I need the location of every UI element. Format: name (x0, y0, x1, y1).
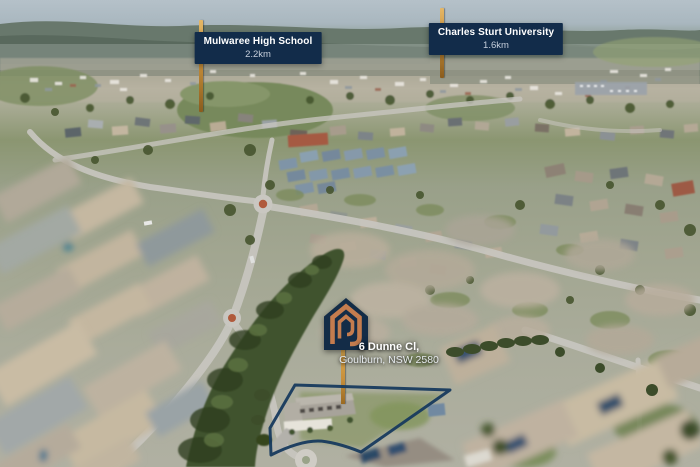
aerial-property-photo: Mulwaree High School 2.2km Charles Sturt… (0, 0, 700, 467)
property-address-line2: Goulburn, NSW 2580 (339, 354, 439, 366)
poi-label-school: Mulwaree High School 2.2km (195, 32, 322, 64)
property-address: 6 Dunne Cl, Goulburn, NSW 2580 (339, 341, 439, 366)
poi-title: Charles Sturt University (438, 27, 554, 39)
property-address-line1: 6 Dunne Cl, (339, 341, 439, 354)
poi-title: Mulwaree High School (204, 36, 313, 48)
poi-distance: 2.2km (204, 49, 313, 60)
poi-label-university: Charles Sturt University 1.6km (429, 23, 563, 55)
poi-distance: 1.6km (438, 40, 554, 51)
aerial-photo-background (0, 0, 700, 467)
